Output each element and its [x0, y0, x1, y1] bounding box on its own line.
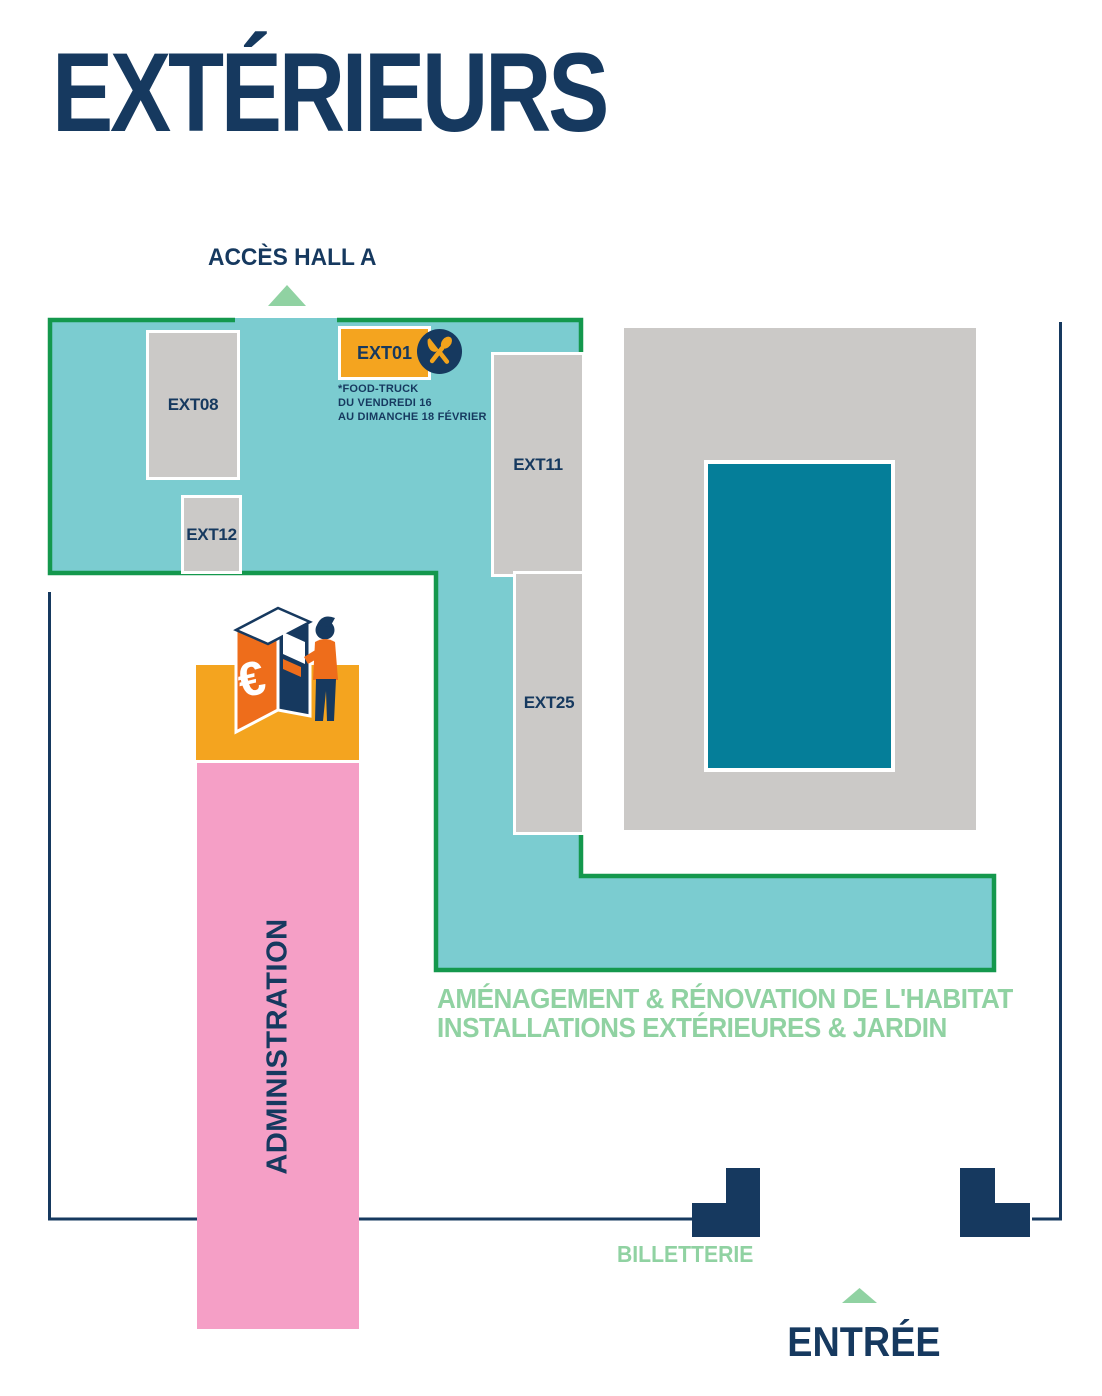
billetterie-wall-right	[960, 1168, 1030, 1237]
billetterie-label: BILLETTERIE	[617, 1241, 753, 1268]
booth-ext08-label: EXT08	[168, 395, 218, 415]
booth-ext11[interactable]: EXT11	[491, 352, 585, 577]
page-title: EXTÉRIEURS	[52, 28, 606, 157]
zone-caption: AMÉNAGEMENT & RÉNOVATION DE L'HABITAT IN…	[437, 984, 1013, 1042]
booth-ext08[interactable]: EXT08	[146, 330, 240, 480]
atm-cash-machine-icon: €	[222, 592, 344, 740]
hall-a-arrow-icon	[268, 285, 306, 306]
exterior-map-page: EXTÉRIEURS ACCÈS HALL A EXT08 EXT12 EXT1…	[0, 0, 1102, 1396]
foodtruck-note-line3: AU DIMANCHE 18 FÉVRIER	[338, 410, 487, 424]
entrance-label: ENTRÉE	[787, 1318, 936, 1366]
booth-ext25[interactable]: EXT25	[513, 571, 585, 835]
site-border-right	[1032, 322, 1061, 1219]
booth-ext12-label: EXT12	[186, 525, 236, 545]
zone-caption-line2: INSTALLATIONS EXTÉRIEURES & JARDIN	[437, 1013, 1013, 1042]
hall-a-access-label: ACCÈS HALL A	[208, 244, 376, 272]
central-building-pool	[704, 460, 895, 772]
administration-label: ADMINISTRATION	[262, 918, 295, 1174]
billetterie-wall-left	[692, 1168, 760, 1237]
foodtruck-note-line1: *FOOD-TRUCK	[338, 382, 487, 396]
booth-ext11-label: EXT11	[513, 455, 563, 475]
entrance-arrow-icon	[842, 1288, 877, 1303]
zone-caption-line1: AMÉNAGEMENT & RÉNOVATION DE L'HABITAT	[437, 984, 1013, 1013]
booth-ext01-label: EXT01	[357, 343, 412, 364]
foodtruck-note: *FOOD-TRUCK DU VENDREDI 16 AU DIMANCHE 1…	[338, 382, 487, 424]
booth-ext12[interactable]: EXT12	[181, 495, 242, 574]
foodtruck-note-line2: DU VENDREDI 16	[338, 396, 487, 410]
administration-building[interactable]: ADMINISTRATION	[197, 763, 359, 1329]
booth-ext25-label: EXT25	[524, 693, 574, 713]
fork-knife-icon	[416, 328, 463, 375]
